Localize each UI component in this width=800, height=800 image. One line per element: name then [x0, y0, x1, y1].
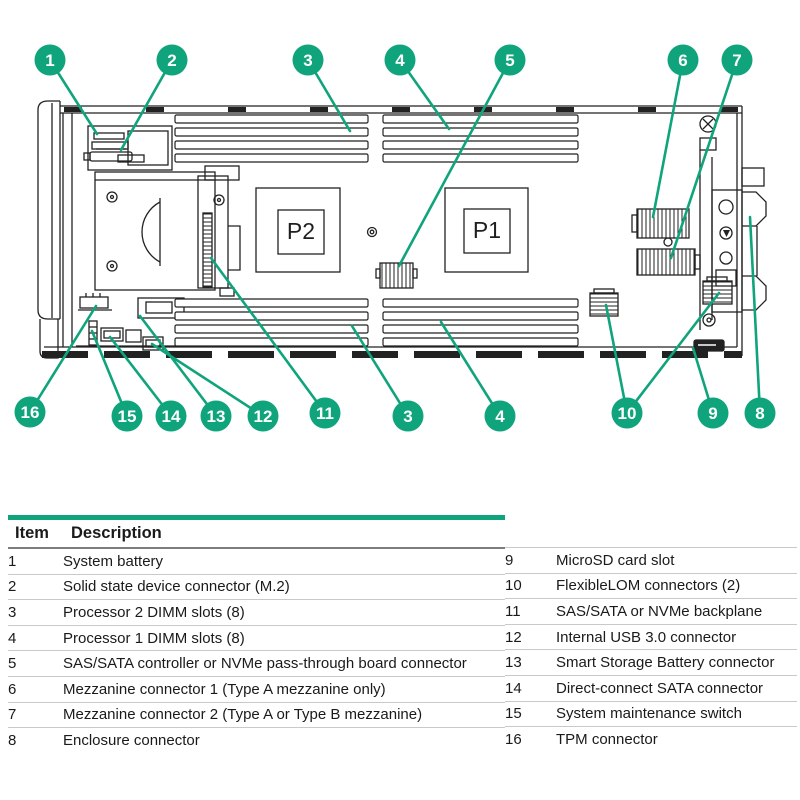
callout-14: 14: [156, 401, 187, 432]
svg-text:8: 8: [755, 404, 764, 423]
callout-4: 4: [385, 45, 416, 76]
svg-text:3: 3: [403, 407, 412, 426]
flexiblelom-connector-1: [590, 289, 618, 316]
storage-controller-connector: [376, 263, 417, 288]
item-description: TPM connector: [556, 727, 797, 752]
dimm-slot: [383, 338, 578, 346]
item-number: 10: [505, 573, 556, 599]
callout-leader-8: [750, 217, 760, 413]
front-bezel: [38, 101, 60, 358]
table-row: 10FlexibleLOM connectors (2): [505, 573, 797, 599]
item-description: Direct-connect SATA connector: [556, 675, 797, 701]
callout-4: 4: [485, 401, 516, 432]
table-row: 12Internal USB 3.0 connector: [505, 624, 797, 650]
table-row: 14Direct-connect SATA connector: [505, 675, 797, 701]
flexiblelom-connector-2: [703, 277, 732, 304]
callout-6: 6: [668, 45, 699, 76]
callout-5: 5: [495, 45, 526, 76]
item-header: Item: [8, 518, 63, 549]
callout-leader-7: [671, 60, 737, 258]
item-number: 8: [8, 728, 63, 753]
cpu1-label: P1: [473, 217, 501, 243]
item-description: Enclosure connector: [63, 728, 505, 753]
item-description: Processor 1 DIMM slots (8): [63, 625, 505, 651]
item-number: 1: [8, 548, 63, 574]
item-number: 13: [505, 650, 556, 676]
item-description: System battery: [63, 548, 505, 574]
item-description: FlexibleLOM connectors (2): [556, 573, 797, 599]
table-row: 11SAS/SATA or NVMe backplane: [505, 599, 797, 625]
dimm-slot: [383, 299, 578, 307]
item-description: System maintenance switch: [556, 701, 797, 727]
callout-16: 16: [15, 397, 46, 428]
svg-text:14: 14: [162, 407, 181, 426]
legend-table-right: 9MicroSD card slot10FlexibleLOM connecto…: [505, 547, 797, 752]
description-header: Description: [63, 518, 505, 549]
svg-text:4: 4: [495, 407, 505, 426]
table-row: 9MicroSD card slot: [505, 548, 797, 574]
svg-text:3: 3: [303, 51, 312, 70]
dimm-slot: [383, 154, 578, 162]
dimm-slot: [175, 154, 368, 162]
svg-text:1: 1: [45, 51, 54, 70]
svg-text:2: 2: [167, 51, 176, 70]
item-number: 16: [505, 727, 556, 752]
table-row: 6Mezzanine connector 1 (Type A mezzanine…: [8, 676, 505, 702]
cpu2-label: P2: [287, 218, 315, 244]
svg-text:16: 16: [21, 403, 40, 422]
callout-1: 1: [35, 45, 66, 76]
page: P2 P1 1234567161514131211341098 Item Des…: [0, 0, 800, 800]
svg-text:12: 12: [254, 407, 273, 426]
mezzanine-connector-2: [637, 249, 700, 275]
callout-11: 11: [310, 398, 341, 429]
dimm-slot: [175, 128, 368, 136]
item-description: Processor 2 DIMM slots (8): [63, 600, 505, 626]
microsd-slot: [694, 340, 724, 351]
callout-3: 3: [393, 401, 424, 432]
item-number: 6: [8, 676, 63, 702]
item-description: Internal USB 3.0 connector: [556, 624, 797, 650]
callout-9: 9: [698, 398, 729, 429]
item-description: Smart Storage Battery connector: [556, 650, 797, 676]
table-row: 5SAS/SATA controller or NVMe pass-throug…: [8, 651, 505, 677]
table-header-row: Item Description: [8, 518, 505, 549]
item-number: 14: [505, 675, 556, 701]
dimm-slot: [175, 141, 368, 149]
callout-8: 8: [745, 398, 776, 429]
callout-leader-2: [121, 60, 172, 150]
callout-leader-10: [606, 305, 627, 413]
callout-15: 15: [112, 401, 143, 432]
board-screw: [368, 228, 377, 237]
callout-leader-6: [653, 60, 683, 217]
table-row: 13Smart Storage Battery connector: [505, 650, 797, 676]
callout-10: 10: [612, 398, 643, 429]
backplane-connector: [198, 166, 240, 296]
item-number: 5: [8, 651, 63, 677]
item-description: SAS/SATA controller or NVMe pass-through…: [63, 651, 505, 677]
svg-text:9: 9: [708, 404, 717, 423]
callout-7: 7: [722, 45, 753, 76]
item-description: MicroSD card slot: [556, 548, 797, 574]
item-description: SAS/SATA or NVMe backplane: [556, 599, 797, 625]
table-row: 15System maintenance switch: [505, 701, 797, 727]
table-row: 1System battery: [8, 548, 505, 574]
item-number: 12: [505, 624, 556, 650]
table-row: 8Enclosure connector: [8, 728, 505, 753]
dimm-slot: [383, 325, 578, 333]
svg-text:11: 11: [316, 404, 334, 423]
svg-text:5: 5: [505, 51, 514, 70]
svg-text:13: 13: [207, 407, 226, 426]
dimm-slot: [175, 312, 368, 320]
callout-2: 2: [157, 45, 188, 76]
item-description: Mezzanine connector 1 (Type A mezzanine …: [63, 676, 505, 702]
legend-table-left: Item Description 1System battery2Solid s…: [8, 515, 505, 753]
svg-text:15: 15: [118, 407, 137, 426]
item-number: 4: [8, 625, 63, 651]
callout-13: 13: [201, 401, 232, 432]
item-description: Solid state device connector (M.2): [63, 574, 505, 600]
motherboard-diagram: P2 P1 1234567161514131211341098: [0, 0, 800, 470]
table-row: 3Processor 2 DIMM slots (8): [8, 600, 505, 626]
item-number: 11: [505, 599, 556, 625]
svg-text:4: 4: [395, 51, 405, 70]
table-row: 4Processor 1 DIMM slots (8): [8, 625, 505, 651]
item-number: 9: [505, 548, 556, 574]
table-row: 16TPM connector: [505, 727, 797, 752]
svg-text:6: 6: [678, 51, 687, 70]
dimm-slot: [383, 128, 578, 136]
mezzanine-screw: [664, 238, 672, 246]
table-row: 2Solid state device connector (M.2): [8, 574, 505, 600]
callout-3: 3: [293, 45, 324, 76]
item-number: 15: [505, 701, 556, 727]
dimm-slot: [383, 141, 578, 149]
callout-12: 12: [248, 401, 279, 432]
svg-text:10: 10: [618, 404, 637, 423]
svg-text:7: 7: [732, 51, 741, 70]
item-number: 2: [8, 574, 63, 600]
dimm-slot: [175, 325, 368, 333]
table-row: 7Mezzanine connector 2 (Type A or Type B…: [8, 702, 505, 728]
item-number: 3: [8, 600, 63, 626]
item-number: 7: [8, 702, 63, 728]
callout-leader-4: [441, 322, 500, 416]
item-description: Mezzanine connector 2 (Type A or Type B …: [63, 702, 505, 728]
dimm-slot: [383, 312, 578, 320]
dimm-slot: [175, 299, 368, 307]
callout-leader-11: [211, 258, 325, 413]
drive-cage: [95, 172, 215, 290]
dimm-slot: [175, 115, 368, 123]
